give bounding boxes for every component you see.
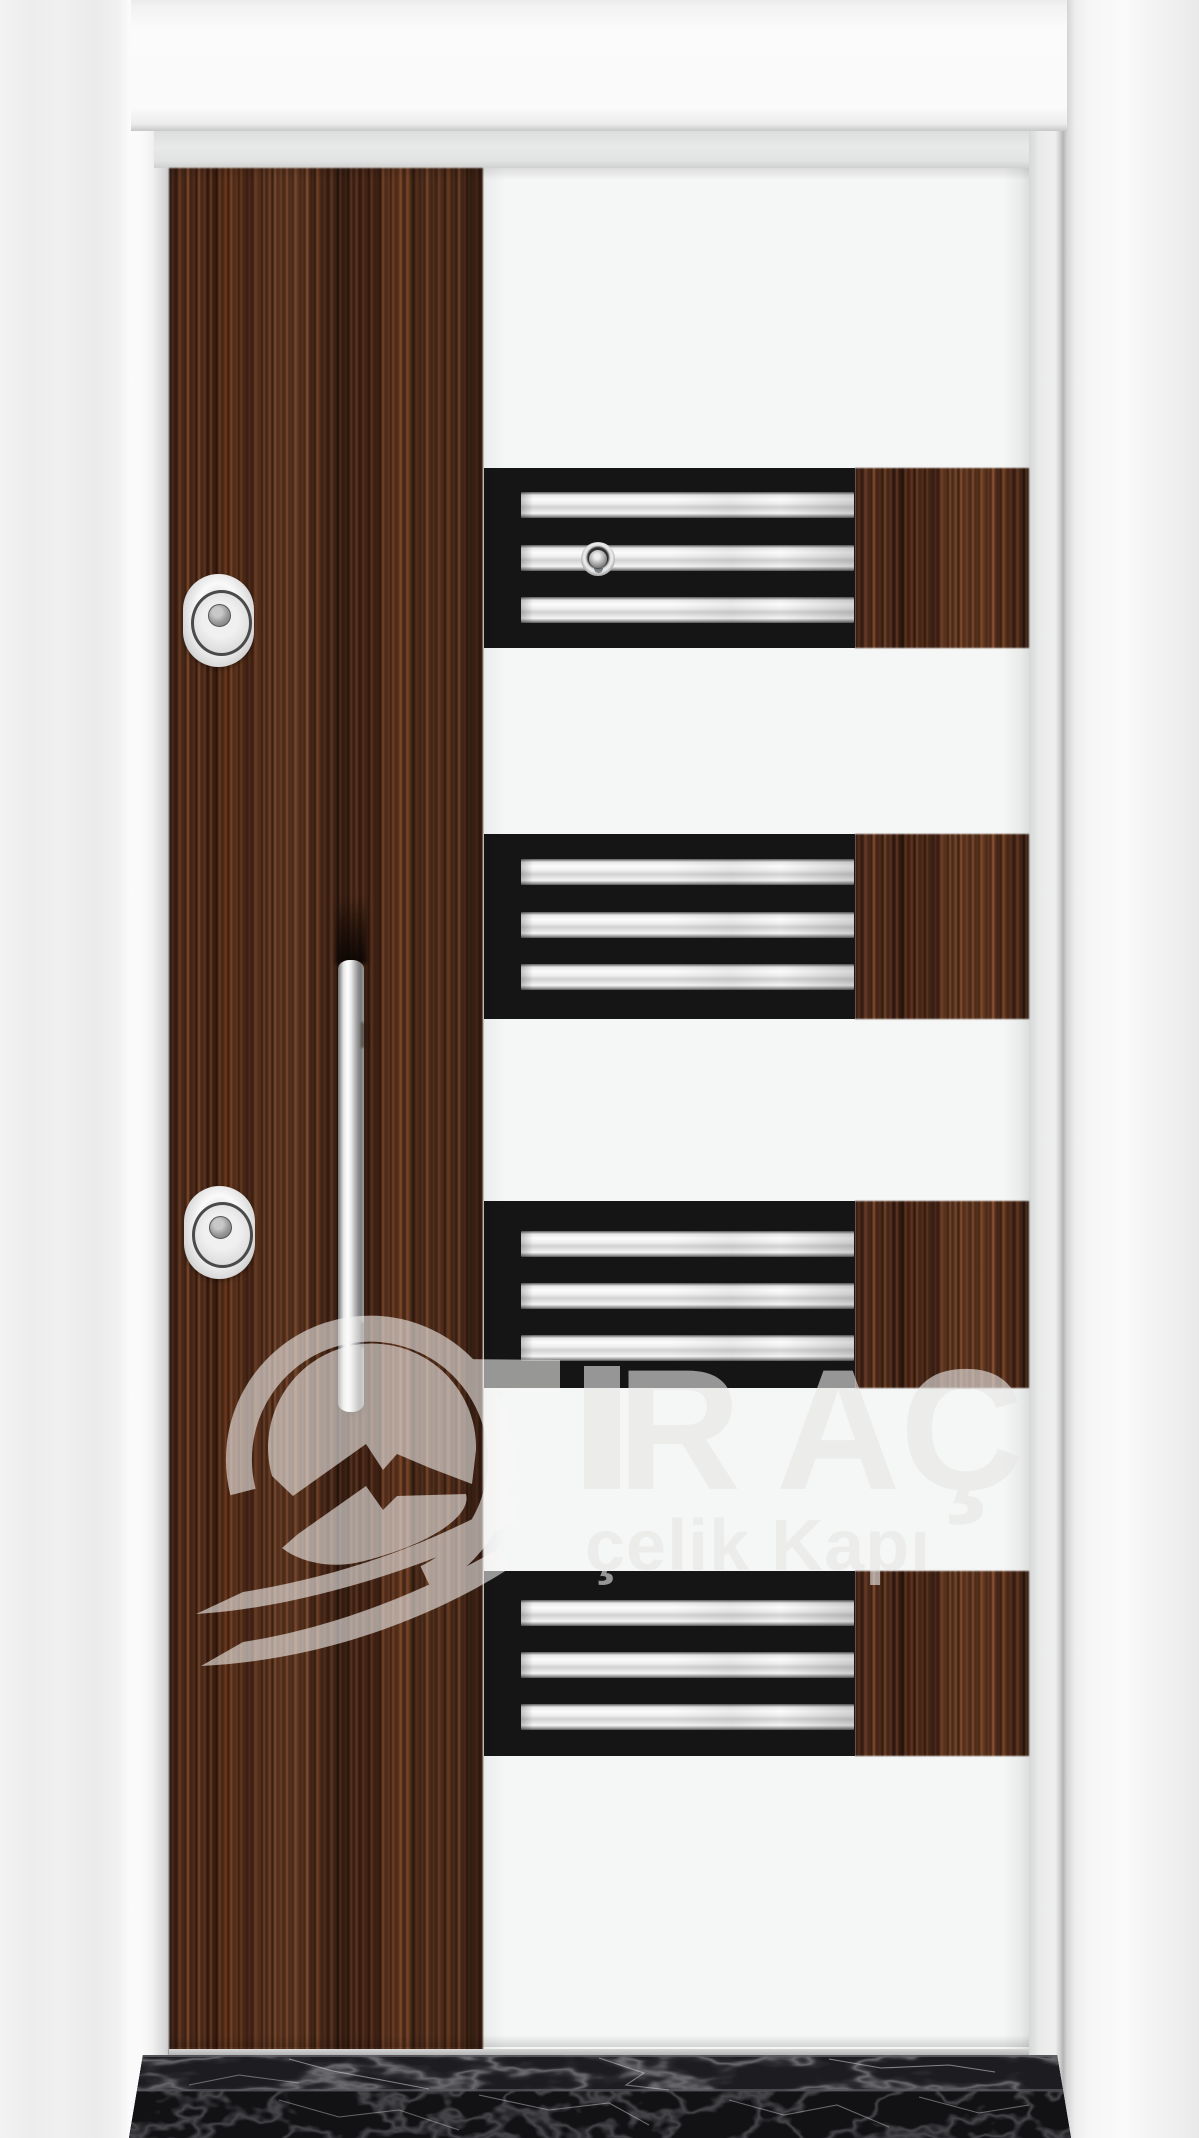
svg-text:Ç: Ç [900,1334,1024,1526]
svg-text:çelik Kapı: çelik Kapı [585,1506,931,1586]
svg-text:A: A [776,1334,900,1526]
svg-text:R: R [617,1334,741,1526]
